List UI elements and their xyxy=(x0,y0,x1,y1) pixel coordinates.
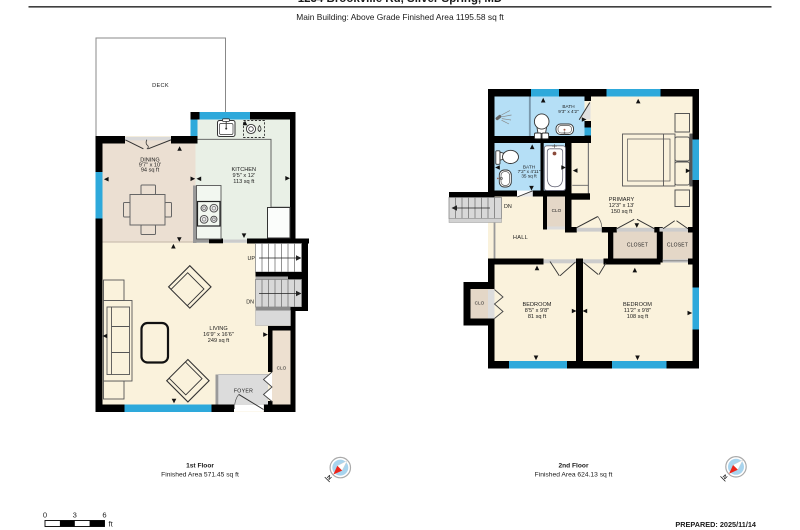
svg-text:35 sq ft: 35 sq ft xyxy=(521,174,537,179)
svg-text:150 sq ft: 150 sq ft xyxy=(611,209,633,215)
svg-text:2nd Floor: 2nd Floor xyxy=(558,463,588,470)
svg-text:CLO: CLO xyxy=(475,301,485,306)
svg-text:1234 Brookville Rd, Silver Spr: 1234 Brookville Rd, Silver Spring, MD xyxy=(298,0,503,5)
svg-text:6: 6 xyxy=(102,511,106,520)
svg-text:UP: UP xyxy=(248,256,256,262)
svg-text:3: 3 xyxy=(73,511,77,520)
svg-text:CLO: CLO xyxy=(552,208,562,213)
svg-text:81 sq ft: 81 sq ft xyxy=(528,314,547,320)
svg-text:CLOSET: CLOSET xyxy=(667,243,688,249)
svg-text:PREPARED: 2025/11/14: PREPARED: 2025/11/14 xyxy=(675,520,757,529)
svg-text:HALL: HALL xyxy=(513,235,528,241)
svg-text:DN: DN xyxy=(246,300,254,306)
svg-text:Finished Area 571.45 sq ft: Finished Area 571.45 sq ft xyxy=(161,472,239,479)
svg-text:113 sq ft: 113 sq ft xyxy=(233,179,254,185)
svg-text:94 sq ft: 94 sq ft xyxy=(141,168,160,174)
svg-text:CLO: CLO xyxy=(277,366,287,371)
svg-text:FOYER: FOYER xyxy=(234,389,253,395)
svg-text:0: 0 xyxy=(43,511,47,520)
svg-text:Finished Area 624.13 sq ft: Finished Area 624.13 sq ft xyxy=(535,472,613,479)
svg-text:108 sq ft: 108 sq ft xyxy=(627,314,649,320)
svg-text:9'3" x 4'2": 9'3" x 4'2" xyxy=(558,109,579,114)
svg-text:CLOSET: CLOSET xyxy=(627,243,648,249)
svg-text:249 sq ft: 249 sq ft xyxy=(208,338,230,344)
svg-text:DECK: DECK xyxy=(152,83,169,89)
svg-text:1st Floor: 1st Floor xyxy=(186,463,214,470)
svg-text:Main Building: Above Grade Fin: Main Building: Above Grade Finished Area… xyxy=(296,12,504,22)
svg-text:DN: DN xyxy=(504,204,512,210)
